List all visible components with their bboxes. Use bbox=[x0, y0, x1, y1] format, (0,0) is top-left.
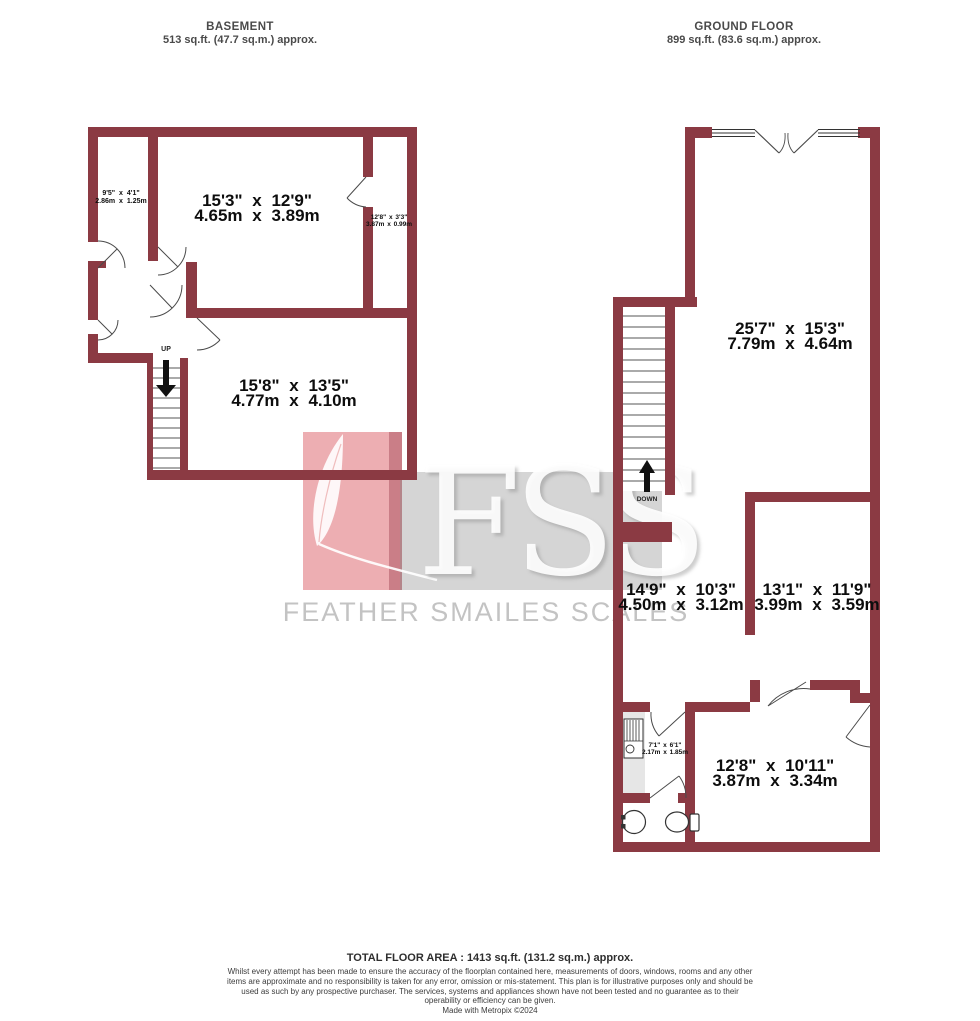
room-label-basement-narrow: 12'8" x 3'3"3.87m x 0.99m bbox=[366, 214, 412, 228]
room-label-ground-shower-room: 7'1" x 6'1"2.17m x 1.85m bbox=[642, 742, 688, 756]
credit-text: Made with Metropix ©2024 bbox=[180, 1006, 800, 1016]
window-icon bbox=[712, 130, 860, 137]
sink-icon bbox=[621, 811, 646, 834]
down-label: DOWN bbox=[637, 496, 658, 503]
basement-title: BASEMENT bbox=[80, 21, 400, 33]
double-door-icon bbox=[755, 130, 818, 153]
disclaimer-text: Whilst every attempt has been made to en… bbox=[226, 967, 754, 1006]
room-label-ground-rear: 12'8" x 10'11"3.87m x 3.34m bbox=[712, 759, 837, 788]
basement-header: BASEMENT 513 sq.ft. (47.7 sq.m.) approx. bbox=[80, 21, 400, 46]
basement-stairs-icon bbox=[153, 358, 180, 470]
floorplan-drawing bbox=[0, 0, 980, 1021]
basement-walls bbox=[88, 127, 417, 480]
basement-floorplan bbox=[88, 127, 417, 480]
ground-floor-header: GROUND FLOOR 899 sq.ft. (83.6 sq.m.) app… bbox=[584, 21, 904, 46]
ground-floor-title: GROUND FLOOR bbox=[584, 21, 904, 33]
total-floor-area: TOTAL FLOOR AREA : 1413 sq.ft. (131.2 sq… bbox=[180, 952, 800, 964]
room-label-ground-middle-left: 14'9" x 10'3"4.50m x 3.12m bbox=[618, 583, 743, 612]
up-arrow-icon bbox=[163, 360, 169, 386]
basement-area: 513 sq.ft. (47.7 sq.m.) approx. bbox=[80, 34, 400, 46]
floorplan-page: FSS FEATHER SMAILES SCALES bbox=[0, 0, 980, 1021]
room-label-basement-main: 15'3" x 12'9"4.65m x 3.89m bbox=[194, 194, 319, 223]
room-label-basement-rear: 15'8" x 13'5"4.77m x 4.10m bbox=[231, 379, 356, 408]
room-label-basement-store: 9'5" x 4'1"2.86m x 1.25m bbox=[95, 190, 146, 205]
ground-floor-stairs-icon bbox=[623, 305, 665, 492]
shower-unit-icon bbox=[624, 719, 643, 758]
toilet-icon bbox=[666, 812, 700, 832]
room-label-ground-reception: 25'7" x 15'3"7.79m x 4.64m bbox=[727, 322, 852, 351]
up-label: UP bbox=[161, 346, 171, 353]
footer: TOTAL FLOOR AREA : 1413 sq.ft. (131.2 sq… bbox=[180, 952, 800, 1016]
room-label-ground-middle-right: 13'1" x 11'9"3.99m x 3.59m bbox=[754, 583, 879, 612]
ground-floor-area: 899 sq.ft. (83.6 sq.m.) approx. bbox=[584, 34, 904, 46]
